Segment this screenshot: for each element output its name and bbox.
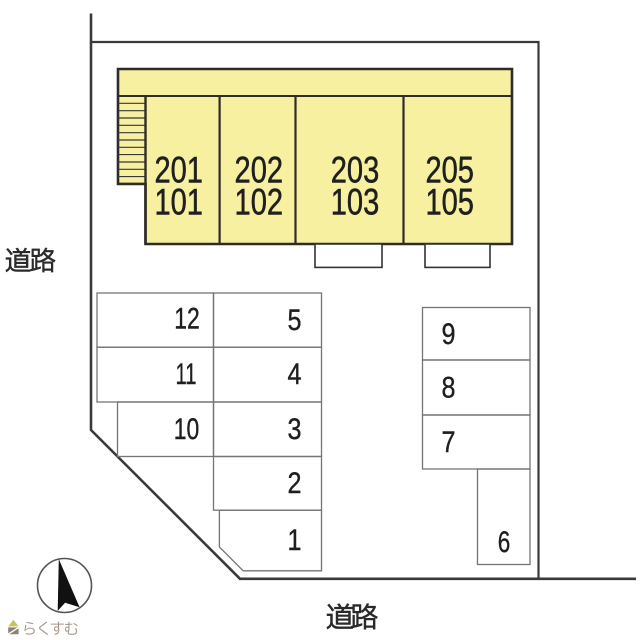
svg-text:105: 105: [425, 181, 474, 223]
svg-text:5: 5: [288, 304, 302, 337]
svg-text:11: 11: [176, 358, 197, 391]
svg-text:1: 1: [288, 524, 302, 557]
svg-text:103: 103: [331, 181, 380, 223]
svg-text:6: 6: [498, 526, 511, 559]
svg-text:3: 3: [288, 413, 302, 446]
svg-text:2: 2: [288, 467, 302, 500]
svg-text:10: 10: [174, 413, 200, 446]
svg-text:7: 7: [442, 426, 456, 459]
svg-text:12: 12: [174, 303, 200, 336]
svg-text:8: 8: [442, 372, 456, 405]
svg-text:102: 102: [235, 181, 284, 223]
svg-text:4: 4: [288, 358, 302, 391]
svg-text:101: 101: [154, 181, 203, 223]
svg-text:9: 9: [442, 318, 456, 351]
